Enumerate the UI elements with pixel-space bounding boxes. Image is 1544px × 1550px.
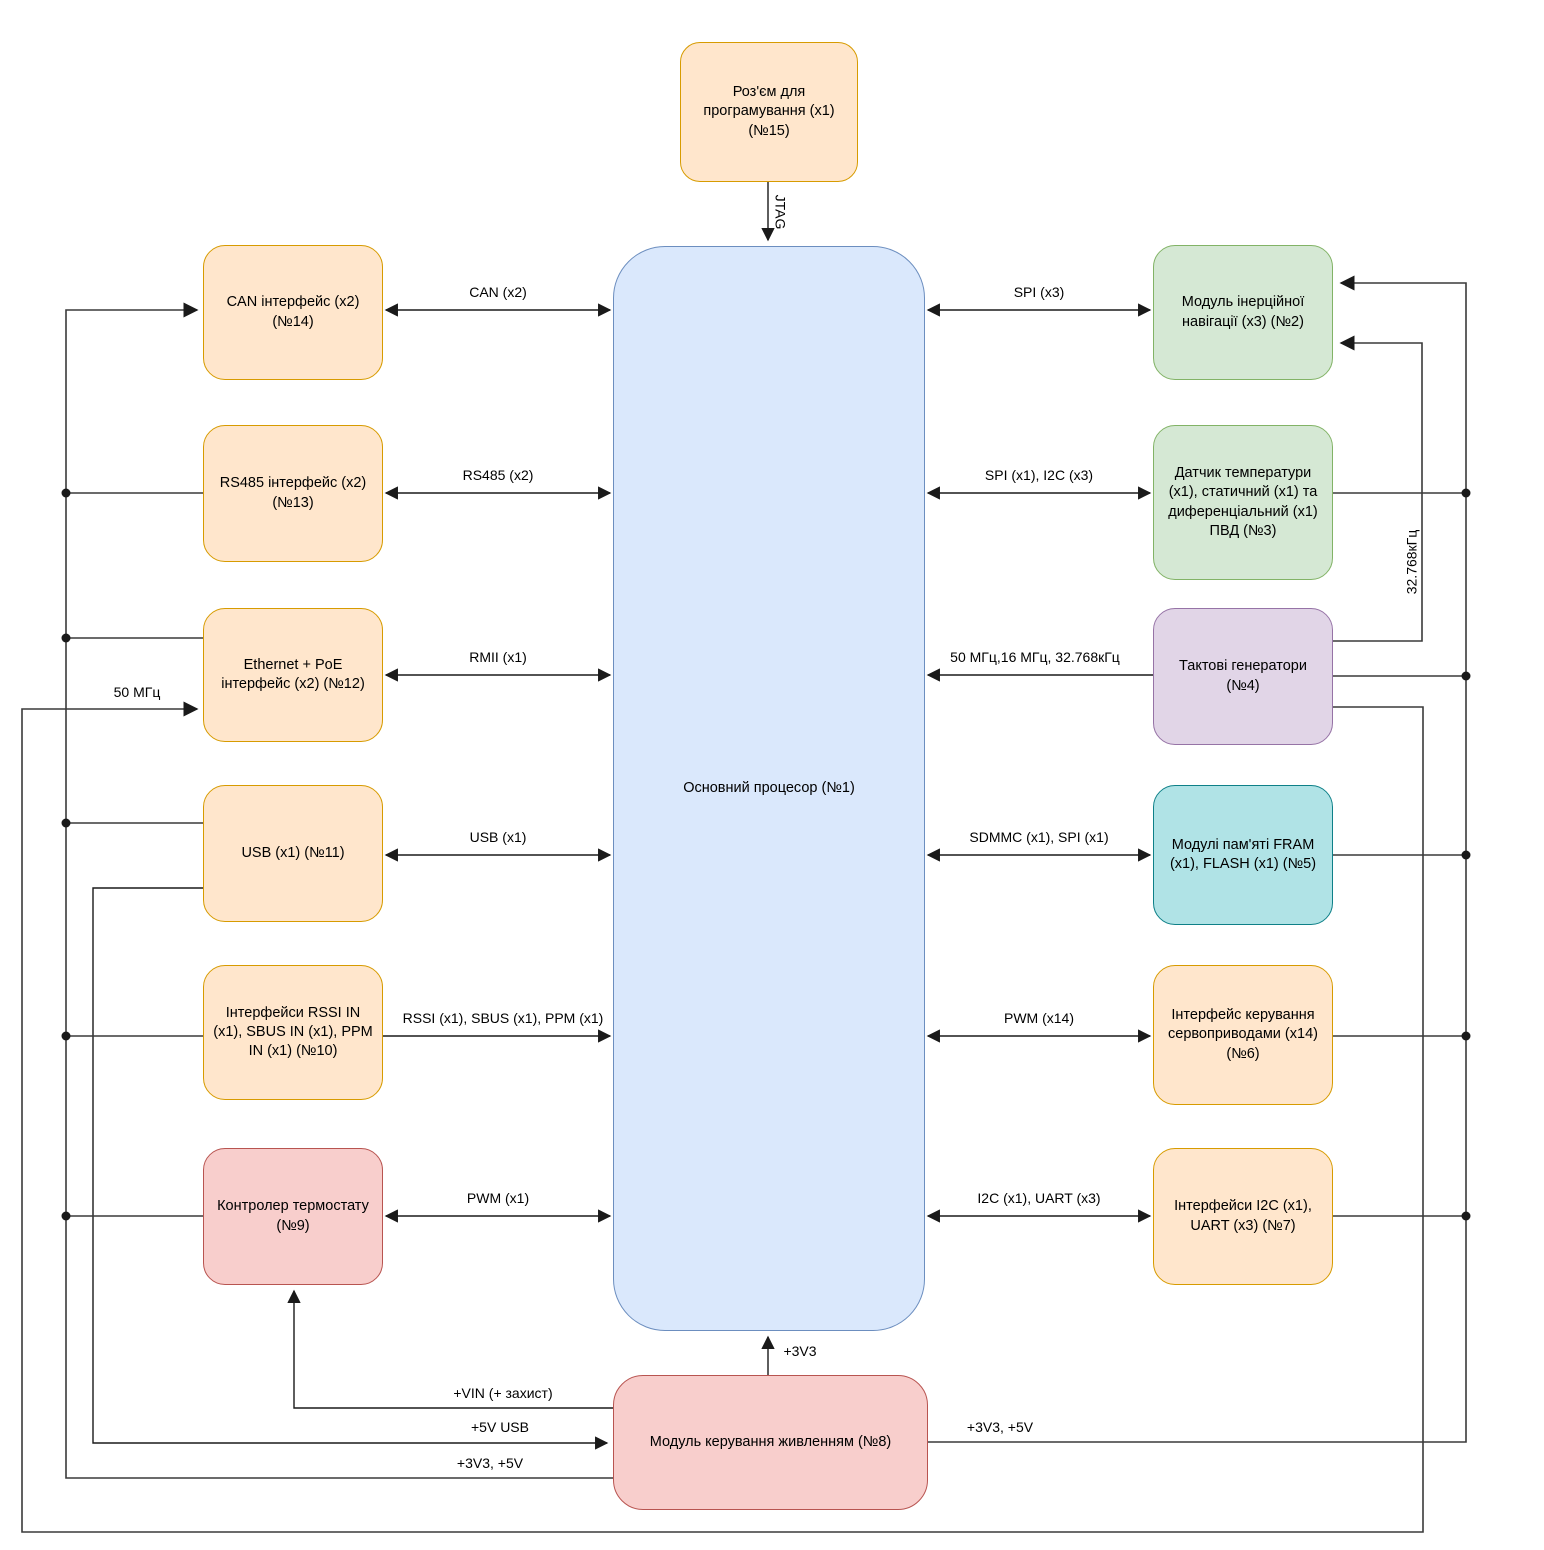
edge-label-pwm14: PWM (x14) [1004, 1010, 1074, 1027]
block-clock-generators[interactable]: Тактові генератори (№4) [1153, 608, 1333, 745]
diagram-canvas: Роз'єм для програмування (x1) (№15) Осно… [0, 0, 1544, 1550]
block-label: Інтерфейси RSSI IN (x1), SBUS IN (x1), P… [212, 1004, 374, 1061]
block-temperature-pressure-sensors[interactable]: Датчик температури (x1), статичний (x1) … [1153, 425, 1333, 580]
edge-label-usb: USB (x1) [470, 829, 527, 846]
edge-label-3v3-5v-right: +3V3, +5V [967, 1419, 1033, 1436]
edge-label-spi-i2c: SPI (x1), I2C (x3) [985, 467, 1093, 484]
block-usb[interactable]: USB (x1) (№11) [203, 785, 383, 922]
block-label: CAN інтерфейс (x2) (№14) [212, 293, 374, 331]
block-label: Інтерфейс керування сервоприводами (x14)… [1162, 1006, 1324, 1063]
block-rc-inputs[interactable]: Інтерфейси RSSI IN (x1), SBUS IN (x1), P… [203, 965, 383, 1100]
block-programming-connector[interactable]: Роз'єм для програмування (x1) (№15) [680, 42, 858, 182]
edge-label-32khz: 32.768кГц [1404, 530, 1421, 595]
block-label: USB (x1) (№11) [241, 844, 344, 863]
block-ethernet-poe[interactable]: Ethernet + PoE інтерфейс (x2) (№12) [203, 608, 383, 742]
block-label: Тактові генератори (№4) [1162, 657, 1324, 695]
rail-32khz [1333, 343, 1422, 641]
block-label: Роз'єм для програмування (x1) (№15) [689, 83, 849, 140]
edge-label-can: CAN (x2) [469, 284, 527, 301]
edge-label-3v3: +3V3 [783, 1343, 816, 1360]
edge-label-vin: +VIN (+ захист) [453, 1385, 552, 1402]
block-memory-modules[interactable]: Модулі пам'яті FRAM (x1), FLASH (x1) (№5… [1153, 785, 1333, 925]
edge-label-clk: 50 МГц,16 МГц, 32.768кГц [950, 649, 1120, 666]
edge-label-sdmmc: SDMMC (x1), SPI (x1) [969, 829, 1108, 846]
edge-label-rmii: RMII (x1) [469, 649, 527, 666]
block-label: Основний процесор (№1) [683, 779, 855, 798]
edge-label-50mhz: 50 МГц [114, 684, 161, 701]
block-main-processor[interactable]: Основний процесор (№1) [613, 246, 925, 1331]
block-label: Датчик температури (x1), статичний (x1) … [1162, 464, 1324, 541]
block-inertial-navigation[interactable]: Модуль інерційної навігації (x3) (№2) [1153, 245, 1333, 380]
block-label: RS485 інтерфейс (x2) (№13) [212, 474, 374, 512]
block-label: Ethernet + PoE інтерфейс (x2) (№12) [212, 656, 374, 694]
block-label: Модуль керування живленням (№8) [650, 1433, 891, 1452]
edge-label-3v3-5v-left: +3V3, +5V [457, 1455, 523, 1472]
edge-label-rc: RSSI (x1), SBUS (x1), PPM (x1) [403, 1010, 604, 1027]
edge-label-i2c-uart: I2C (x1), UART (x3) [977, 1190, 1100, 1207]
edge-label-jtag: JTAG [772, 195, 789, 230]
edge-label-pwm-thermo: PWM (x1) [467, 1190, 529, 1207]
block-rs485-interface[interactable]: RS485 інтерфейс (x2) (№13) [203, 425, 383, 562]
edge-label-rs485: RS485 (x2) [463, 467, 534, 484]
block-label: Модулі пам'яті FRAM (x1), FLASH (x1) (№5… [1162, 836, 1324, 874]
edge-label-spi3: SPI (x3) [1014, 284, 1065, 301]
block-servo-control[interactable]: Інтерфейс керування сервоприводами (x14)… [1153, 965, 1333, 1105]
block-label: Контролер термостату (№9) [212, 1197, 374, 1235]
block-label: Модуль інерційної навігації (x3) (№2) [1162, 293, 1324, 331]
block-thermostat-controller[interactable]: Контролер термостату (№9) [203, 1148, 383, 1285]
block-i2c-uart-interfaces[interactable]: Інтерфейси I2C (x1), UART (x3) (№7) [1153, 1148, 1333, 1285]
edge-label-5v-usb: +5V USB [471, 1419, 529, 1436]
block-can-interface[interactable]: CAN інтерфейс (x2) (№14) [203, 245, 383, 380]
block-label: Інтерфейси I2C (x1), UART (x3) (№7) [1162, 1197, 1324, 1235]
block-power-management[interactable]: Модуль керування живленням (№8) [613, 1375, 928, 1510]
